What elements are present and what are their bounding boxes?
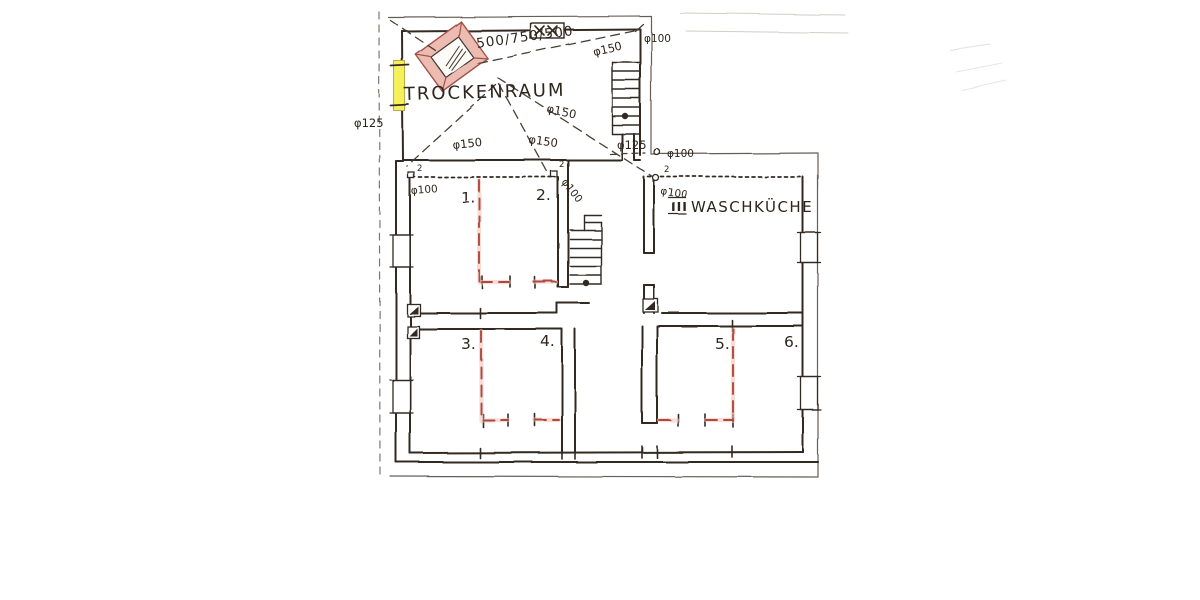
window-left-upper	[390, 235, 413, 267]
dim-stove: 500/750/500	[475, 23, 574, 52]
dim-duct125-left: φ125	[354, 116, 384, 130]
pencil-marks	[680, 13, 1006, 90]
vent-circle-midline	[654, 149, 660, 155]
dim-duct100-room1: φ100	[410, 183, 438, 197]
room-number-2: 2.	[536, 186, 551, 204]
dim-duct150-mid: φ150	[545, 101, 577, 121]
floor-plan-scan: TROCKENRAUM III WASCHKÜCHE 500/750/500 φ…	[0, 0, 1200, 600]
chimney-icon	[407, 326, 419, 338]
corner-mark-room1: 2	[417, 164, 422, 174]
vent-square-room1	[408, 172, 414, 178]
dim-duct125-stair: φ125	[617, 138, 647, 152]
stair-dot	[583, 280, 589, 286]
room-number-4: 4.	[540, 332, 555, 350]
corner-mark-waschkueche: 2	[664, 165, 669, 175]
vent-circle-waschkueche	[653, 175, 659, 181]
chimney-icons	[407, 299, 658, 338]
dim-duct100-tr-corner: φ100	[644, 33, 671, 45]
room-number-3: 3.	[461, 335, 476, 353]
label-waschkueche-marker: III	[671, 199, 688, 214]
dim-duct100-waschkueche: φ100	[660, 185, 688, 201]
window-right-upper	[798, 233, 821, 263]
chimney-icon	[407, 304, 420, 316]
vent-square-room2	[551, 171, 557, 177]
dim-duct150-s: φ150	[528, 132, 559, 150]
room-number-1: 1.	[461, 189, 476, 207]
wall-ticks	[480, 276, 733, 459]
label-trockenraum: TROCKENRAUM	[403, 80, 566, 105]
red-partition-walls	[479, 180, 733, 421]
staircase-trockenraum	[612, 62, 640, 134]
dim-duct150-ne: φ150	[592, 39, 624, 59]
corner-mark-room2: 2	[559, 160, 564, 170]
label-waschkueche: WASCHKÜCHE	[691, 197, 813, 216]
window-left-lower	[390, 380, 413, 413]
dim-duct150-sw: φ150	[452, 135, 483, 152]
staircase-middle	[570, 215, 601, 286]
stair-dot	[622, 113, 628, 119]
dim-duct100-midline: φ100	[667, 148, 694, 160]
room-number-6: 6.	[784, 333, 799, 351]
dim-duct100-room2: φ100	[559, 176, 585, 205]
chimney-icon	[643, 299, 658, 312]
window-right-lower	[798, 377, 821, 410]
floor-plan-svg: TROCKENRAUM III WASCHKÜCHE 500/750/500 φ…	[0, 0, 1200, 600]
room-number-5: 5.	[715, 335, 730, 353]
